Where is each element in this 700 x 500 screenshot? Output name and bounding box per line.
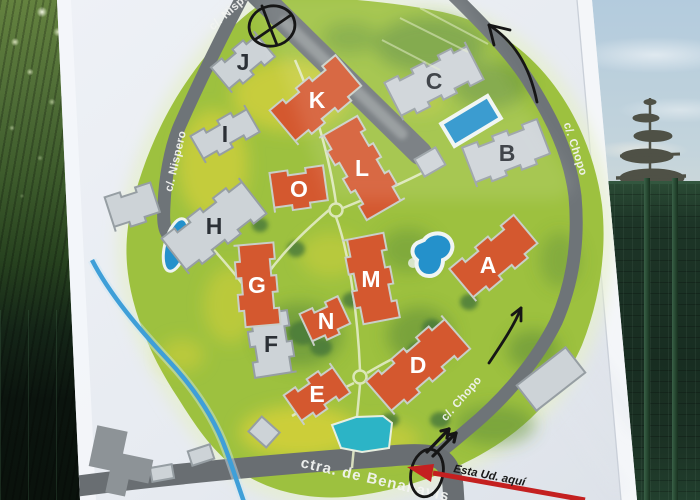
- pool-teal: [332, 416, 392, 452]
- building-label-h: H: [206, 213, 223, 239]
- structure: [150, 464, 174, 482]
- building-label-d: D: [410, 352, 427, 378]
- building-label-e: E: [309, 381, 324, 407]
- building-label-o: O: [290, 176, 308, 202]
- building-label-g: G: [248, 272, 266, 298]
- map-sign: JIHCBFKLOGNMEDA c/. Nispero c/. Nispero …: [0, 0, 700, 500]
- photo-scene: JIHCBFKLOGNMEDA c/. Nispero c/. Nispero …: [0, 0, 700, 500]
- building-label-j: J: [237, 49, 250, 75]
- building-label-f: F: [264, 331, 278, 357]
- building-label-i: I: [222, 121, 228, 147]
- building-label-n: N: [318, 308, 335, 334]
- building-label-m: M: [361, 266, 380, 292]
- building-label-a: A: [480, 252, 497, 278]
